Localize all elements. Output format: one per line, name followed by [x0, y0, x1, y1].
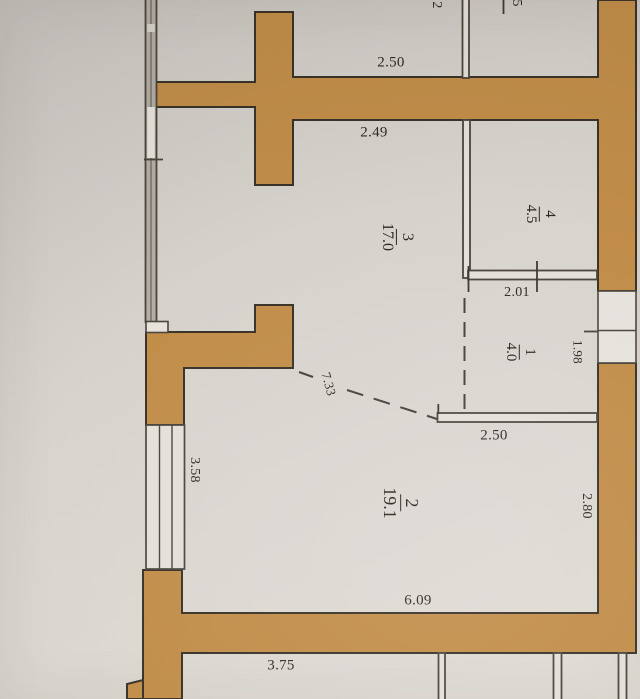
room-number: 1: [519, 344, 538, 360]
room-label-3: 3 17.0: [378, 223, 416, 251]
partial-label-left: 2: [429, 1, 443, 8]
dim-window-height: 3.58: [187, 457, 201, 483]
wall-corner-patch: [127, 680, 143, 699]
dim-room2-height: 2.80: [579, 493, 593, 519]
room-area: 19.1: [380, 487, 400, 519]
dim-room2-width: 6.09: [404, 594, 431, 609]
window-room2: [146, 425, 185, 569]
room-label-1: 1 4.0: [502, 343, 538, 362]
partition-room1-room2: [438, 413, 598, 422]
room-area: 4.5: [522, 205, 539, 224]
partition-below-2: [554, 653, 562, 699]
left-exterior-wall: [144, 0, 168, 333]
room-label-4: 4 4.5: [522, 205, 558, 224]
left-wall-lintel: [146, 322, 168, 333]
room-label-2: 2 19.1: [380, 487, 422, 519]
room-number: 4: [539, 206, 558, 222]
dashed-lines: [299, 298, 465, 419]
floorplan-drawing: [0, 0, 640, 699]
partial-label-right: 5: [509, 0, 523, 7]
masonry-walls: [127, 0, 636, 699]
floorplan-photo: 3 17.0 4 4.5 1 4.0 2 19.1 2.50 2.49 2.01…: [0, 0, 640, 699]
room-number: 3: [396, 229, 416, 245]
dim-bottom-width: 3.75: [267, 659, 294, 674]
right-wall-opening: [584, 291, 636, 363]
partition-below-1: [439, 653, 446, 699]
room-area: 17.0: [378, 223, 396, 251]
dim-top-width: 2.50: [377, 56, 404, 71]
dim-room3-width: 2.49: [360, 126, 387, 141]
diagonal-dash-start: [299, 372, 313, 377]
diagonal-dash-line: [347, 390, 437, 419]
left-wall-break: [147, 24, 155, 32]
dim-entry-depth: 1.98: [572, 340, 585, 364]
room-number: 2: [400, 495, 422, 512]
left-wall-window-glass: [147, 107, 155, 158]
dim-hall-width: 2.01: [504, 286, 530, 300]
partition-below-3: [619, 653, 627, 699]
partition-room3-room4: [463, 120, 470, 278]
partition-room4-room1: [468, 271, 597, 280]
partition-top-vertical: [463, 0, 470, 78]
dim-room1-width: 2.50: [480, 429, 507, 444]
room-area: 4.0: [502, 343, 519, 362]
